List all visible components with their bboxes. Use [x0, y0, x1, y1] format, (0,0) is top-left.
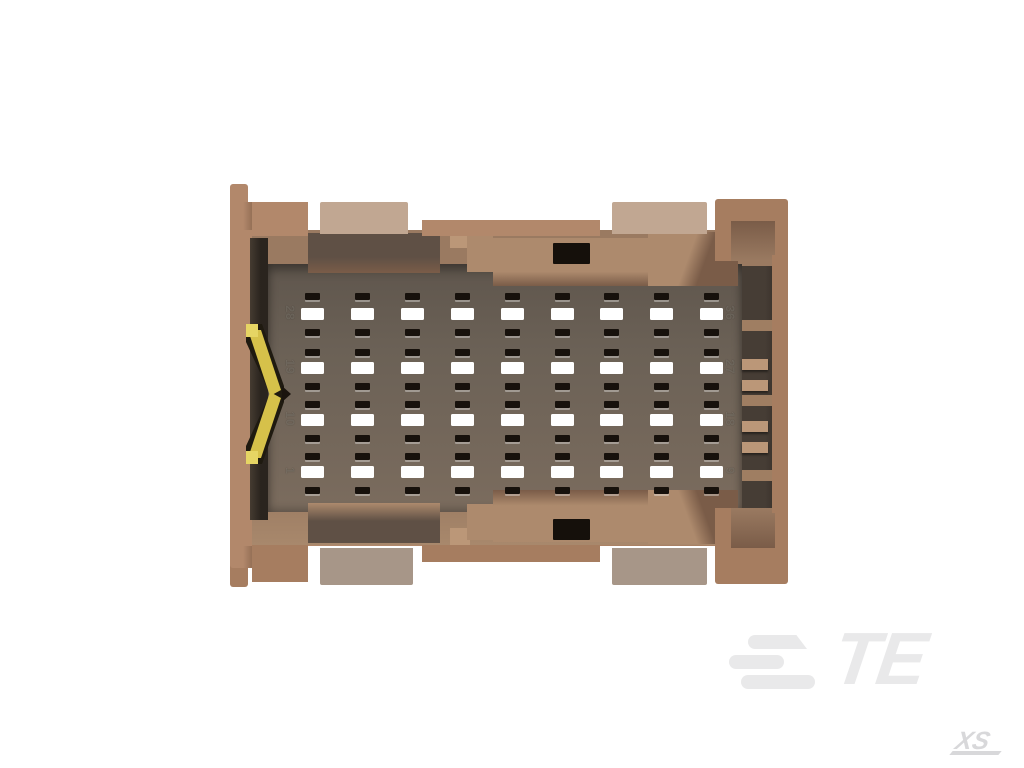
housing-bottom-tab-right: [612, 548, 707, 585]
housing-top-segment-middle: [422, 220, 600, 236]
cavity-number-label: 9: [723, 461, 737, 481]
housing-corner-top-right-recess: [731, 221, 775, 261]
housing-wall-right: [772, 255, 788, 513]
cavity-number-label: 10: [283, 409, 297, 429]
te-logo-ribbon-bar-bottom: [741, 675, 815, 689]
housing-bottom-segment-left: [252, 545, 308, 582]
housing-bottom-tab-left: [320, 548, 413, 585]
housing-bottom-segment-middle: [422, 545, 600, 562]
cavity-number-label: 19: [283, 357, 297, 377]
cavity-number-label: 1: [283, 461, 297, 481]
housing-top-tab-right: [612, 202, 707, 234]
cavity-number-label: 27: [723, 357, 737, 377]
product-image-canvas: 28361927101819 TE XS: [0, 0, 1024, 768]
te-logo-text: TE: [829, 622, 930, 696]
cavity-number-label: 28: [283, 303, 297, 323]
housing-top-segment-left: [252, 202, 308, 236]
housing-top-tab-left: [320, 202, 408, 234]
xs-watermark-underline: [949, 751, 1001, 755]
cavity-number-label: 18: [723, 409, 737, 429]
housing-corner-bottom-right-recess: [731, 508, 775, 548]
te-logo-ribbon-bar-middle: [729, 655, 784, 669]
cavity-number-label: 36: [723, 303, 737, 323]
